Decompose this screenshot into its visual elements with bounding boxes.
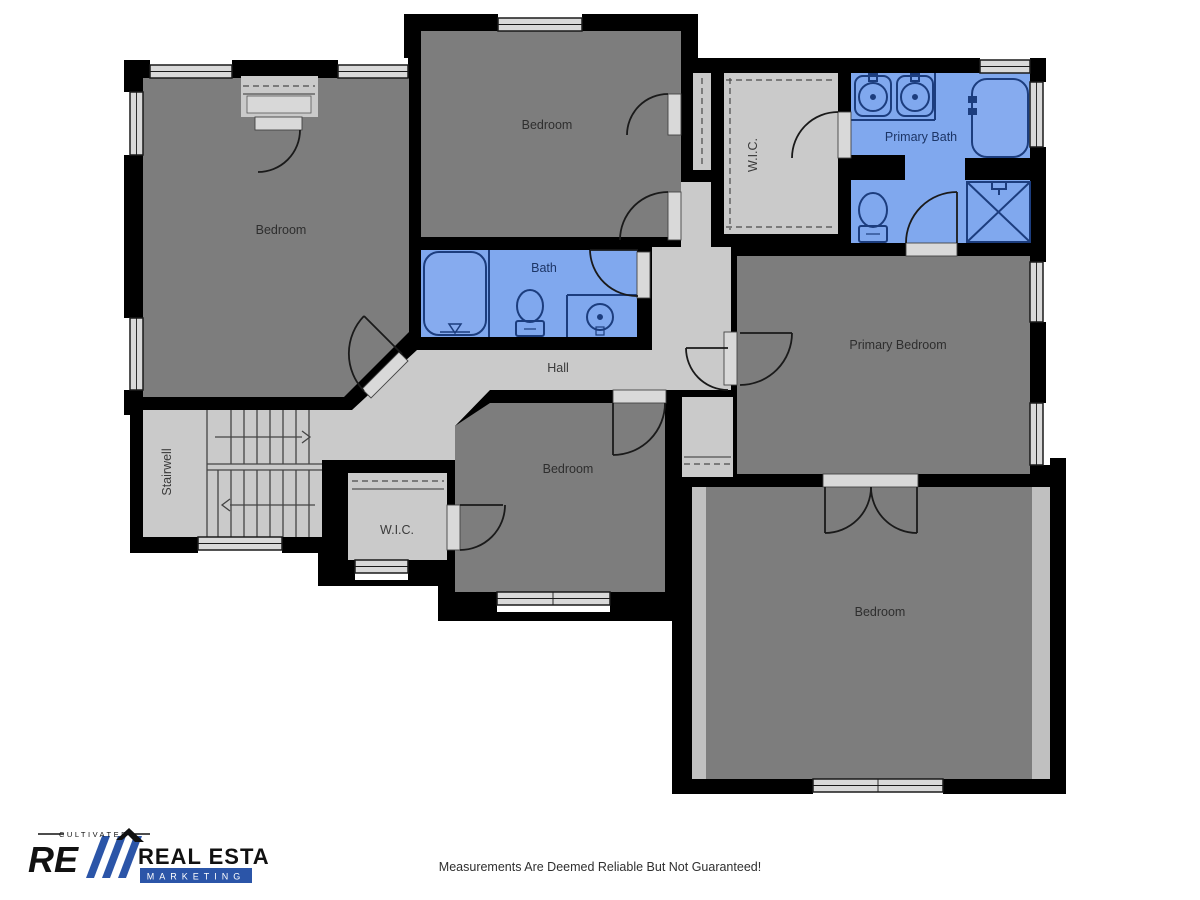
linen-closet bbox=[682, 397, 733, 477]
room-primary-bath bbox=[838, 73, 1030, 243]
label-bedroom-top-middle: Bedroom bbox=[522, 118, 573, 132]
room-bedroom-top-middle bbox=[421, 31, 681, 237]
room-bath bbox=[421, 250, 637, 337]
logo-tagline: CULTIVATED bbox=[59, 830, 129, 839]
label-bedroom-bottom: Bedroom bbox=[855, 605, 906, 619]
floor-plan-page: Bedroom Bedroom Bath Primary Bath W.I.C.… bbox=[0, 0, 1200, 900]
label-bedroom-middle: Bedroom bbox=[543, 462, 594, 476]
label-wic-upper: W.I.C. bbox=[746, 138, 760, 172]
bathtub-icon bbox=[424, 252, 486, 335]
disclaimer-text: Measurements Are Deemed Reliable But Not… bbox=[0, 860, 1200, 874]
label-bedroom-top-left: Bedroom bbox=[256, 223, 307, 237]
room-wic-lower bbox=[348, 473, 447, 560]
room-bedroom-middle bbox=[455, 403, 665, 592]
room-wic-upper bbox=[724, 73, 838, 234]
floor-plan: Bedroom Bedroom Bath Primary Bath W.I.C.… bbox=[0, 0, 1200, 900]
room-bedroom-bottom bbox=[692, 487, 1050, 779]
company-logo: RE CULTIVATED REAL ESTATE MARKETING bbox=[28, 826, 268, 886]
label-primary-bedroom: Primary Bedroom bbox=[849, 338, 946, 352]
label-bath: Bath bbox=[531, 261, 557, 275]
label-hall: Hall bbox=[547, 361, 569, 375]
label-wic-lower: W.I.C. bbox=[380, 523, 414, 537]
bathtub-icon bbox=[968, 79, 1028, 157]
label-stairwell: Stairwell bbox=[160, 448, 174, 495]
label-primary-bath: Primary Bath bbox=[885, 130, 957, 144]
